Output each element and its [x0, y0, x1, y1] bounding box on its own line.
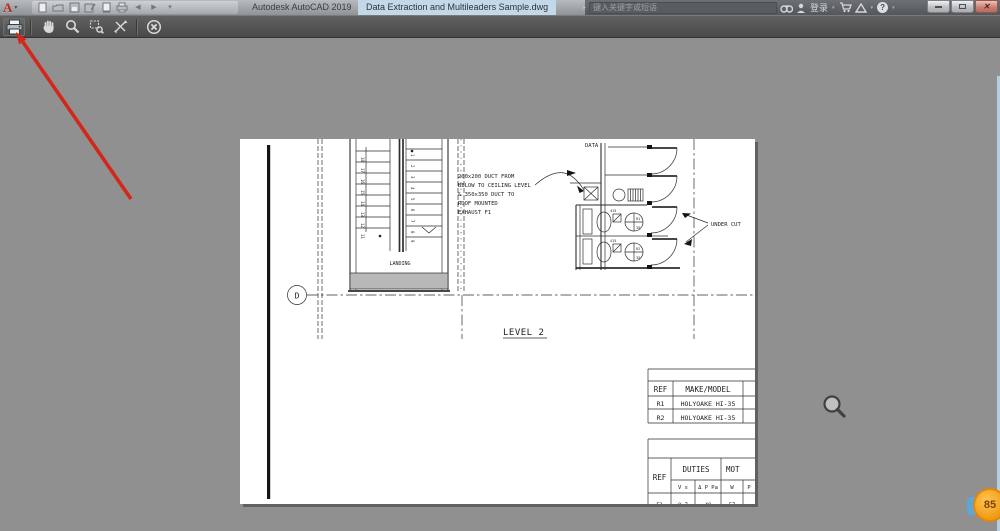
preview-canvas[interactable]: 18 17 16 15 14 13 12 11 1 2: [0, 38, 1000, 531]
undo-button[interactable]: ◀: [132, 2, 144, 14]
table-header-cell: DUTIES: [682, 465, 710, 474]
leader-arrowhead: [577, 186, 584, 194]
duct-note-line: BELOW TO CEILING LEVEL: [458, 183, 532, 189]
search-binoculars-icon[interactable]: [780, 3, 793, 13]
chevron-down-icon: ▾: [168, 4, 172, 11]
table-header-cell: REF: [653, 473, 667, 482]
close-circle-icon: [146, 19, 162, 35]
data-room-label: DATA: [585, 143, 599, 149]
table-cell-clipped: 57: [729, 503, 736, 505]
maximize-button[interactable]: [951, 0, 974, 13]
table-subheader-cell: V s: [678, 485, 688, 491]
stair-number: 12: [360, 223, 365, 228]
autocad-logo-icon: A: [1, 1, 12, 14]
save-as-icon: [84, 2, 96, 13]
printer-icon: [116, 2, 128, 13]
plot-preview-toolbar: [0, 15, 1000, 38]
minimize-icon: [935, 6, 942, 8]
zoom-original-button[interactable]: [109, 18, 131, 36]
magnifier-icon: [65, 19, 80, 34]
qat-customize-button[interactable]: ▾: [164, 2, 176, 14]
under-cut-label: UNDER CUT: [711, 222, 741, 228]
new-file-icon: [37, 2, 48, 13]
autodesk-exchange-icon[interactable]: [855, 3, 867, 13]
app-menu-button[interactable]: A ▾: [1, 0, 31, 15]
table-subheader-cell: P: [747, 485, 751, 491]
thick-wall-line: [267, 145, 270, 499]
window-controls: ✕: [927, 0, 998, 13]
close-preview-button[interactable]: [143, 18, 165, 36]
maximize-icon: [959, 4, 966, 9]
landing-label: LANDING: [389, 261, 410, 267]
diffuser-flow: 35: [636, 226, 640, 230]
stair-number: 3: [410, 176, 415, 179]
diffuser-ref: R2: [636, 247, 640, 251]
assistant-badge-text: 85: [984, 499, 996, 511]
printer-icon: [6, 19, 23, 35]
chevron-down-icon[interactable]: ▾: [871, 5, 874, 11]
app-title: Autodesk AutoCAD 2019: [252, 0, 352, 15]
basin-symbol: [613, 189, 625, 201]
wc-symbol: [597, 242, 611, 262]
wc-symbol: [597, 212, 611, 232]
table-cell: R1: [657, 400, 665, 408]
duct-note-line: EXHAUST F1: [458, 210, 491, 216]
zoom-original-icon: [113, 19, 128, 34]
redo-arrow-icon: ▶: [151, 4, 156, 11]
stair-number: 5: [410, 198, 415, 201]
table-subheader-cell: W: [730, 485, 734, 491]
open-button[interactable]: [52, 2, 64, 14]
stair-number: 6: [410, 209, 415, 212]
zoom-button[interactable]: [61, 18, 83, 36]
chevron-down-icon[interactable]: ▾: [832, 5, 835, 11]
pan-hand-icon: [41, 19, 56, 34]
toolbar-separator: [30, 19, 32, 35]
quick-access-toolbar: ◀ ▶ ▾: [32, 1, 238, 14]
pan-button[interactable]: [37, 18, 59, 36]
stair-number: 13: [360, 212, 365, 217]
stair-number: 8: [410, 231, 415, 234]
zoom-window-button[interactable]: [85, 18, 107, 36]
stall-dim: 415: [610, 239, 616, 243]
stair-number: 15: [360, 190, 365, 195]
sheet-icon: [101, 2, 112, 13]
window-titlebar: A ▾ ◀ ▶ ▾ Autodesk AutoCAD 2019 Data Ext…: [0, 0, 1000, 15]
chevron-down-icon[interactable]: ▾: [892, 5, 895, 11]
table-header-cell: REF: [654, 385, 668, 394]
level-label: LEVEL 2: [503, 328, 544, 338]
stair-number: 1: [410, 154, 415, 157]
diffuser-ref: R1: [636, 217, 640, 221]
drawing-level2-plan: 18 17 16 15 14 13 12 11 1 2: [240, 139, 755, 504]
diffuser-flow: 35: [636, 256, 640, 260]
table-cell-clipped: 0.7: [678, 503, 688, 505]
leader-line: [535, 173, 584, 190]
table-header-cell: MAKE/MODEL: [685, 385, 731, 394]
duct-note-line: & 350x350 DUCT TO: [458, 192, 514, 198]
stair-number: 16: [360, 179, 365, 184]
stair-number: 2: [410, 165, 415, 168]
open-folder-icon: [52, 2, 64, 13]
duct-note-line: 200x200 DUCT FROM: [458, 174, 515, 180]
stall-dim: 415: [610, 209, 616, 213]
sheet-set-button[interactable]: [100, 2, 112, 14]
help-icon[interactable]: ?: [877, 2, 888, 13]
search-input[interactable]: [589, 2, 777, 14]
table-header-cell: MOT: [726, 465, 740, 474]
stair-number: 14: [360, 201, 365, 206]
zoom-cursor-icon: [820, 393, 850, 421]
document-title: Data Extraction and Multileaders Sample.…: [358, 0, 556, 15]
search-expand-icon[interactable]: ▸: [583, 4, 586, 11]
table-cell-clipped: F1: [656, 503, 663, 505]
new-button[interactable]: [36, 2, 48, 14]
app-store-cart-icon[interactable]: [839, 2, 852, 13]
stair-number: 17: [360, 168, 365, 173]
stair-number: 18: [360, 157, 365, 162]
stair-number: 7: [410, 220, 415, 223]
plot-button[interactable]: [3, 18, 25, 36]
stair-number: 4: [410, 187, 415, 190]
stair-direction-arrow: [422, 227, 436, 233]
plot-preview-sheet: 18 17 16 15 14 13 12 11 1 2: [240, 139, 755, 504]
grid-bubble-label: D: [295, 292, 300, 301]
table-cell: R2: [657, 414, 665, 422]
plot-qat-button[interactable]: [116, 2, 128, 14]
close-icon: ✕: [983, 3, 990, 11]
chevron-down-icon: ▾: [14, 4, 17, 11]
toolbar-separator: [136, 19, 138, 35]
table-cell: HOLYOAKE HI-35: [681, 414, 736, 422]
close-button[interactable]: ✕: [975, 0, 998, 13]
sign-in-button[interactable]: 登录: [810, 1, 828, 14]
undo-arrow-icon: ◀: [135, 4, 140, 11]
save-button[interactable]: [68, 2, 80, 14]
table-cell: HOLYOAKE HI-35: [681, 400, 736, 408]
autocad-window: A ▾ ◀ ▶ ▾ Autodesk AutoCAD 2019 Data Ext…: [0, 0, 1000, 531]
leader-arrowhead: [567, 170, 576, 176]
save-as-button[interactable]: [84, 2, 96, 14]
infocenter: ▸ 登录 ▾ ▾ ? ▾: [583, 0, 896, 15]
duct-note-line: ROOF MOUNTED: [458, 201, 498, 207]
user-icon: [796, 3, 806, 13]
save-disk-icon: [69, 2, 80, 13]
redo-button[interactable]: ▶: [148, 2, 160, 14]
assistant-badge[interactable]: 85: [973, 488, 1000, 522]
stair-number: 9: [410, 240, 415, 243]
stair-number: 11: [360, 234, 365, 239]
table-subheader-cell: Δ P Pa: [698, 485, 718, 491]
zoom-window-icon: [89, 19, 104, 34]
minimize-button[interactable]: [927, 0, 950, 13]
table-cell-clipped: 40: [705, 503, 712, 505]
